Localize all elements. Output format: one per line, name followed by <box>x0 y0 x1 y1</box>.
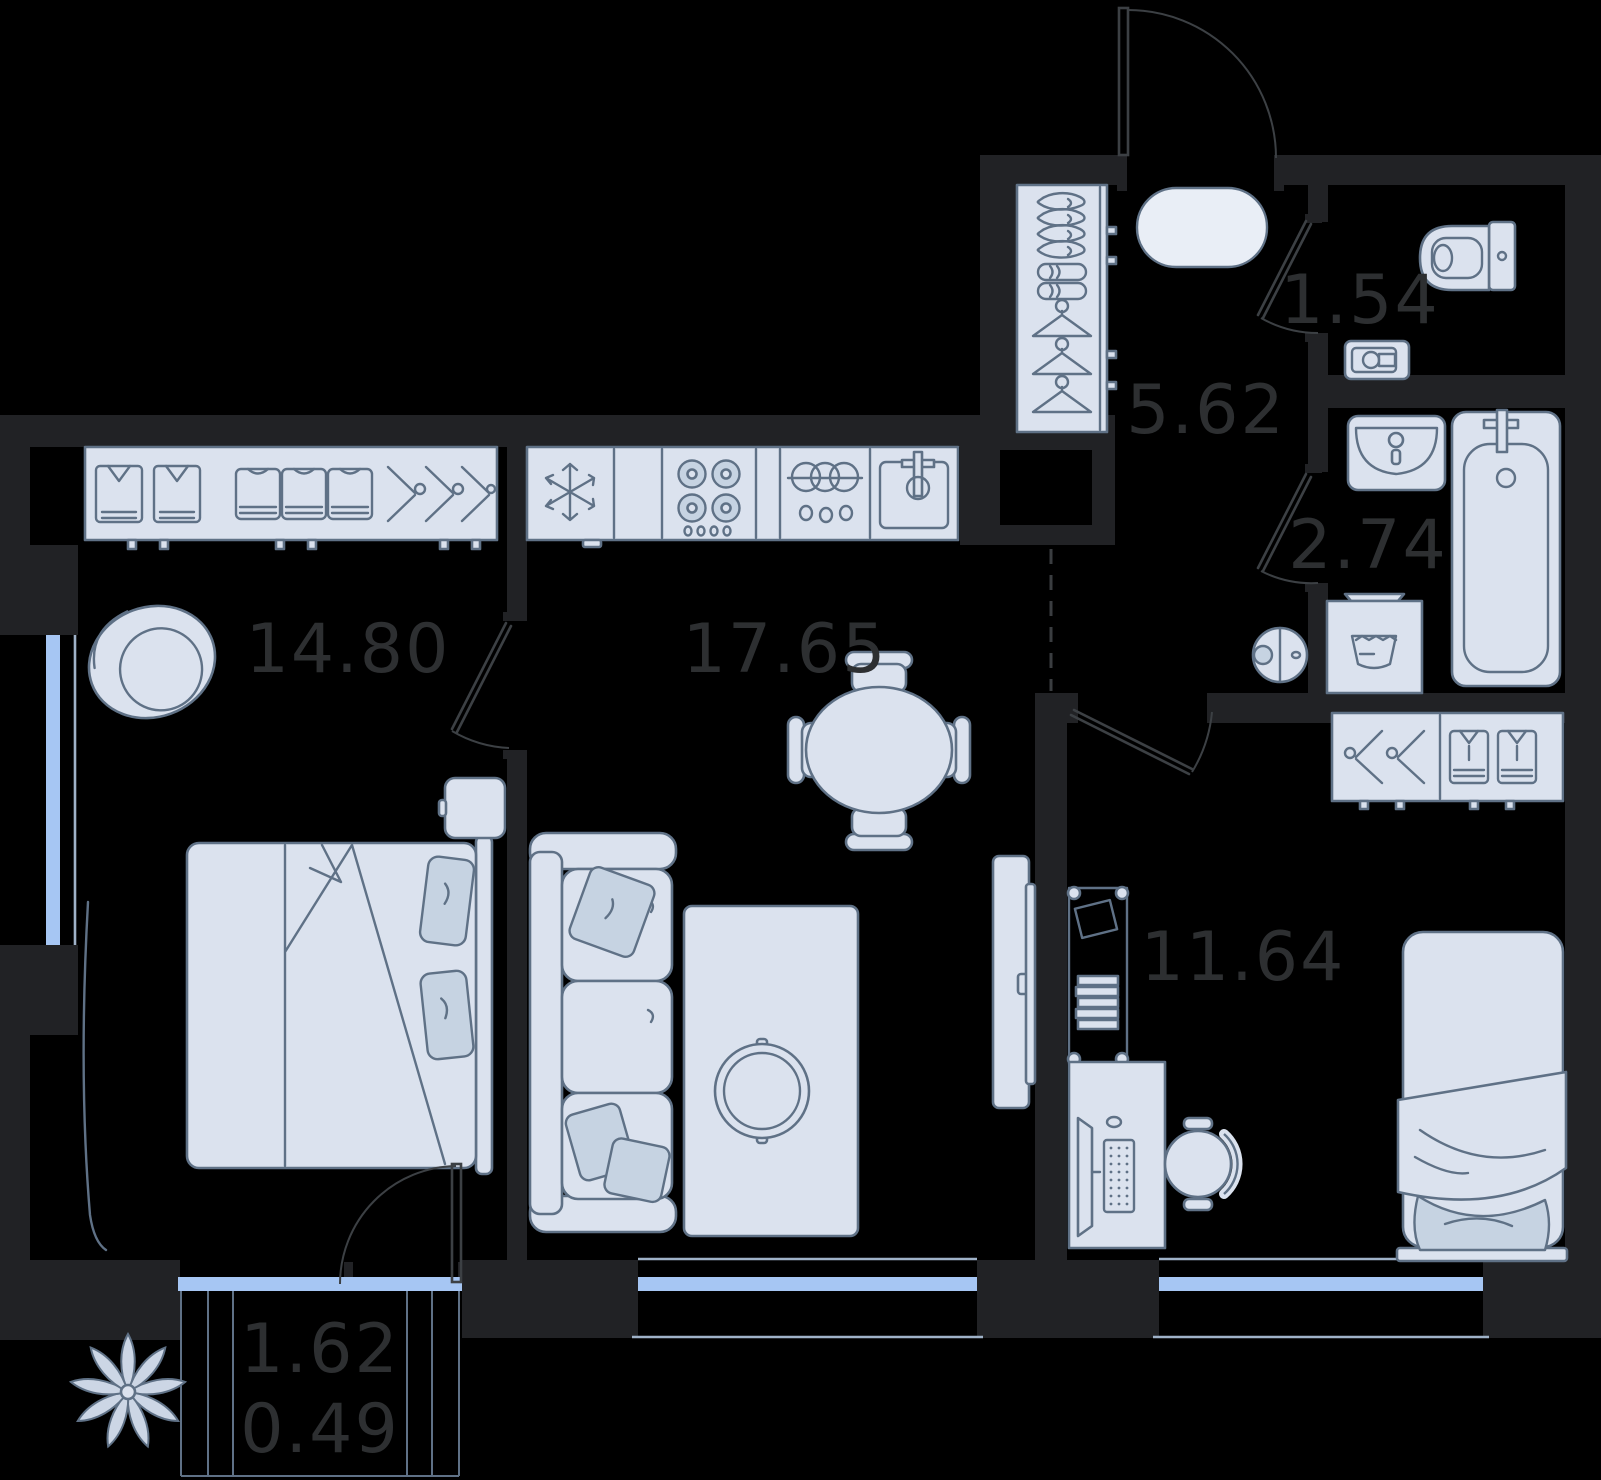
window-bedroom-second <box>1159 1277 1483 1291</box>
area-label-wc: 1.54 <box>1280 261 1439 340</box>
single-bed <box>1397 932 1567 1261</box>
floor-plan: 14.80 17.65 5.62 1.54 2.74 11.64 1.62 0.… <box>0 0 1601 1480</box>
sofa <box>530 833 676 1232</box>
double-bed <box>187 836 492 1174</box>
nightstand <box>439 778 505 838</box>
headboard <box>476 836 492 1174</box>
shelving-unit <box>1068 887 1128 1065</box>
armchair <box>73 587 231 735</box>
area-label-bedroom-main: 14.80 <box>246 610 451 689</box>
bedroom-second-door <box>1071 710 1212 774</box>
bathtub <box>1452 410 1560 686</box>
sink-vanity <box>1348 416 1445 490</box>
area-label-hallway: 5.62 <box>1126 371 1285 450</box>
desk-chair <box>1165 1118 1238 1210</box>
wardrobe <box>85 447 497 549</box>
kitchen-living-furniture <box>527 447 1035 1236</box>
window-living <box>638 1277 977 1291</box>
wardrobe-second <box>1332 713 1563 809</box>
shoe-cabinet <box>1017 185 1116 432</box>
bedroom-main-door <box>452 623 511 748</box>
dining-table <box>806 687 952 813</box>
curtain <box>84 902 106 1250</box>
desk <box>1069 1062 1165 1248</box>
tv-icon <box>1026 884 1035 1084</box>
area-label-bedroom-second: 11.64 <box>1141 918 1346 997</box>
wash-basin <box>1345 341 1409 379</box>
window-balcony-door <box>178 1277 462 1291</box>
area-label-bathroom: 2.74 <box>1288 506 1447 585</box>
washing-machine <box>1327 594 1422 693</box>
robot-vacuum <box>1253 628 1307 682</box>
area-label-balcony-counted: 0.49 <box>240 1390 399 1469</box>
kitchen-counter <box>527 447 958 547</box>
balcony-door <box>340 1164 461 1284</box>
entry-mat <box>1137 188 1267 267</box>
floor-plan-canvas: 14.80 17.65 5.62 1.54 2.74 11.64 1.62 0.… <box>0 0 1601 1480</box>
window-bedroom-main <box>46 635 60 945</box>
area-label-kitchen-living: 17.65 <box>683 610 888 689</box>
area-label-balcony-total: 1.62 <box>240 1310 399 1389</box>
entry-door <box>1119 8 1276 158</box>
plant <box>70 1334 187 1449</box>
pillow <box>603 1137 671 1204</box>
monitor-icon <box>1078 1118 1092 1236</box>
tv-stand <box>993 856 1035 1108</box>
